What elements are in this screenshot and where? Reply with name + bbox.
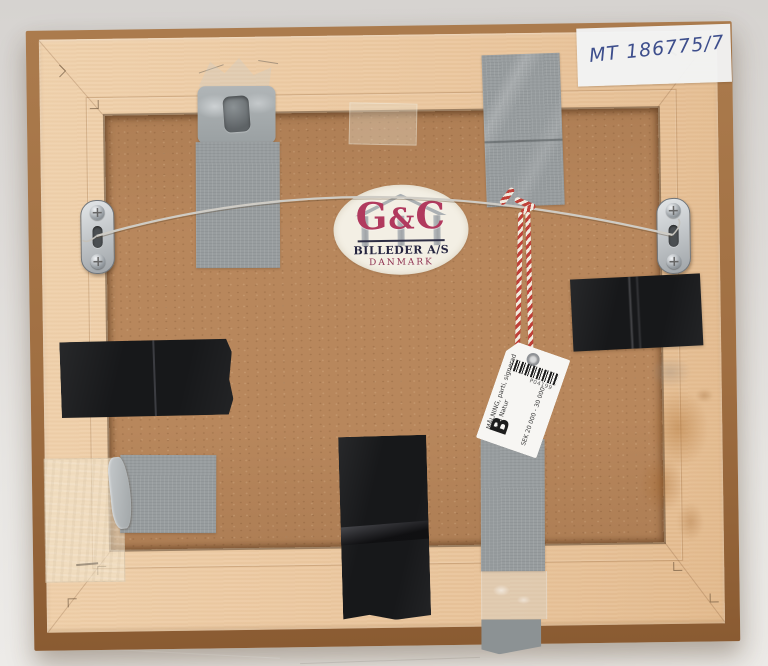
initial-g: G [355,194,388,238]
hanger-plate-right [656,198,691,274]
scrunched-tape-over-ring [197,86,275,144]
black-tape-left [59,336,234,420]
duct-tape-bottom-right [481,439,546,654]
duct-tape-end [481,619,541,654]
duct-tape-strip [196,142,280,268]
duct-tape-top-left [196,92,281,268]
black-tape-right [570,273,703,351]
hanger-slot [668,225,678,247]
backdrop-seam [300,657,480,664]
country-name: DANMARK [334,257,469,269]
screw [90,205,105,220]
staple-mark [673,562,682,571]
staple-mark [68,598,77,607]
initial-c: C [415,193,446,237]
ampersand: & [388,202,416,236]
tape-wrinkle [570,273,703,351]
black-tape-bottom-center [338,435,431,621]
inventory-label: MT 186775/7 [576,24,732,87]
duct-tape-bottom-left [120,455,216,533]
screw [90,254,105,269]
inventory-number-handwritten: MT 186775/7 [588,31,726,67]
company-name: BILLEDER A/S [334,243,469,258]
tape-sheen [482,53,565,208]
tape-seam [152,339,157,417]
glue-stain [630,351,738,552]
clear-tape-overlay [481,571,547,619]
photo-back-of-frame: G&C BILLEDER A/S DANMARK P04199 MÅLNING,… [0,0,768,666]
maker-label-oval: G&C BILLEDER A/S DANMARK [333,184,469,276]
staple-mark [710,593,719,602]
screw [666,254,681,269]
maker-initials: G&C [333,197,469,236]
hanger-slot [92,226,102,248]
screw [666,203,681,218]
tag-estimate: SEK 20 000 - 30 000 [520,386,547,446]
residue-mark [76,562,98,566]
tape-fold [341,520,429,545]
staple-mark [90,100,99,109]
picture-frame: G&C BILLEDER A/S DANMARK P04199 MÅLNING,… [26,21,741,651]
duct-tape-top-right [482,53,565,208]
hanger-plate-left [80,200,115,274]
covered-hanging-ring [222,95,251,133]
clear-tape-top-center [349,102,418,145]
duct-tape-strip [481,439,545,571]
